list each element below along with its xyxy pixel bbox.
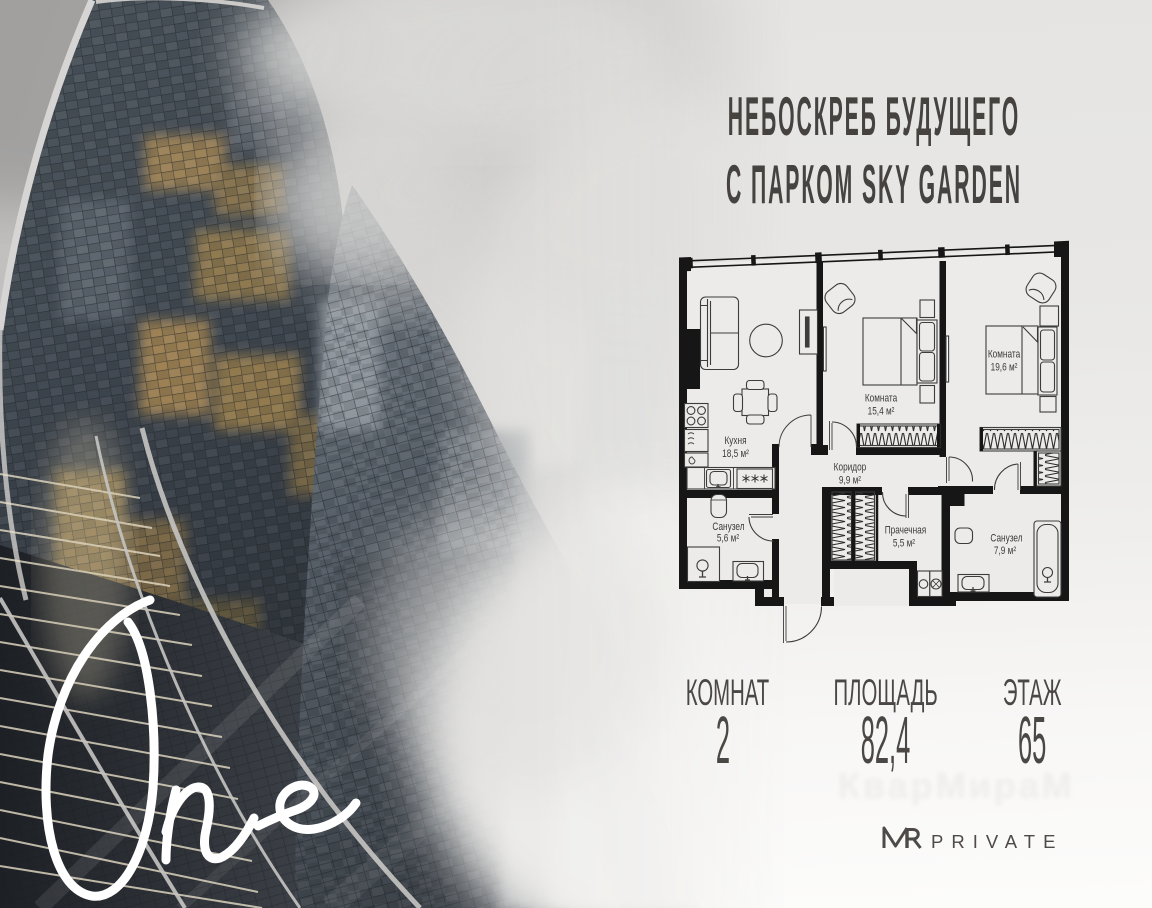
svg-text:2: 2	[716, 702, 730, 777]
svg-text:15,4 м²: 15,4 м²	[868, 405, 895, 417]
svg-text:9,9 м²: 9,9 м²	[839, 474, 862, 486]
svg-text:Коридор: Коридор	[834, 461, 867, 473]
svg-text:Комната: Комната	[865, 392, 898, 404]
svg-text:КварМираМ: КварМираМ	[838, 765, 1075, 806]
svg-text:Санузел: Санузел	[990, 532, 1022, 544]
svg-text:18,5 м²: 18,5 м²	[722, 448, 749, 460]
svg-text:Кухня: Кухня	[724, 435, 746, 447]
svg-text:5,6 м²: 5,6 м²	[717, 532, 740, 544]
svg-text:PRIVATE: PRIVATE	[931, 831, 1063, 852]
svg-text:19,6 м²: 19,6 м²	[991, 361, 1018, 373]
svg-text:НЕБОСКРЕБ БУДУЩЕГО: НЕБОСКРЕБ БУДУЩЕГО	[728, 85, 1020, 147]
svg-text:Прачечная: Прачечная	[885, 524, 926, 536]
svg-text:Комната: Комната	[988, 348, 1021, 360]
svg-text:7,9 м²: 7,9 м²	[994, 545, 1017, 557]
svg-text:5,5 м²: 5,5 м²	[893, 537, 916, 549]
svg-text:С ПАРКОМ SKY GARDEN: С ПАРКОМ SKY GARDEN	[726, 153, 1022, 215]
